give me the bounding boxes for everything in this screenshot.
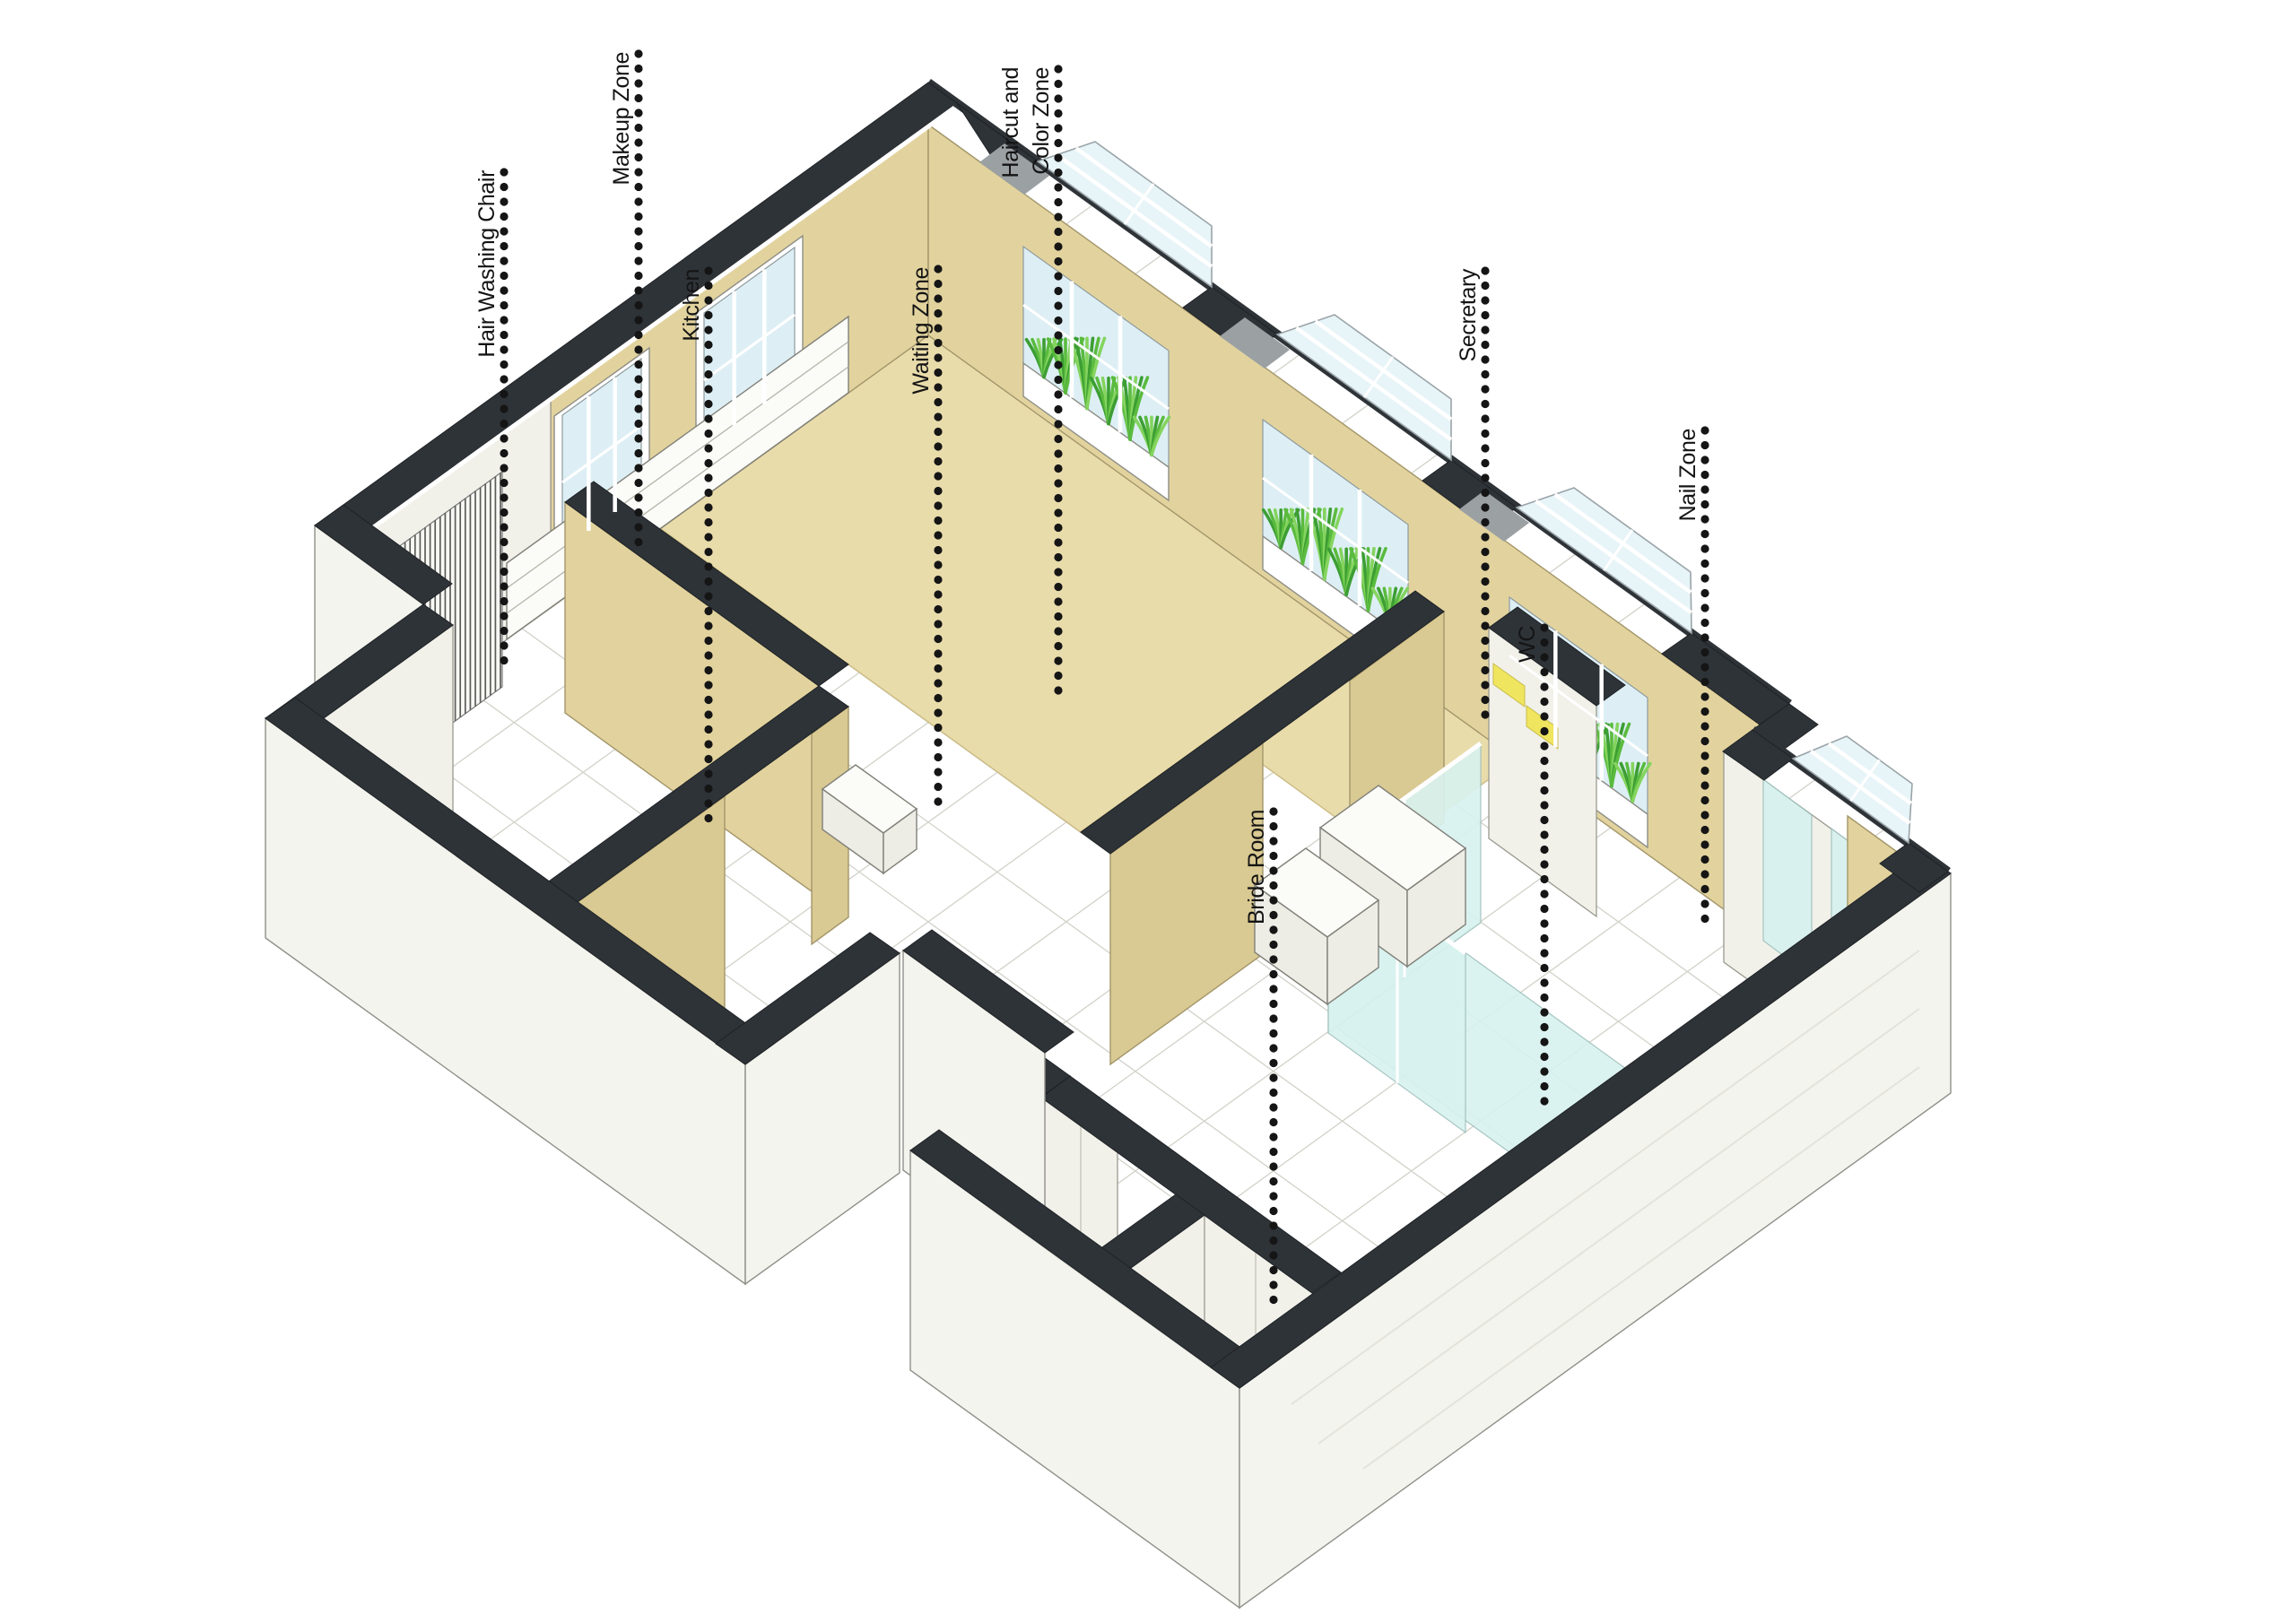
leader-dot (634, 272, 642, 280)
leader-dot (500, 420, 508, 428)
leader-dot (634, 538, 642, 546)
leader-dot (704, 562, 712, 570)
leader-dot (1481, 325, 1489, 334)
leader-dot (1054, 109, 1062, 117)
leader-dot (1269, 985, 1277, 993)
leader-dot (1481, 548, 1489, 556)
leader-dot (1481, 607, 1489, 615)
leader-dot (934, 753, 942, 761)
leader-dot (934, 679, 942, 687)
leader-dot (704, 282, 712, 290)
leader-dot (500, 479, 508, 487)
leader-dot (1540, 712, 1548, 720)
leader-dot (1054, 301, 1062, 309)
leader-dot (1540, 890, 1548, 898)
leader-dot (1481, 681, 1489, 689)
leader-dot (1269, 1177, 1277, 1185)
leader-dot (1540, 994, 1548, 1002)
leader-dot (1054, 65, 1062, 73)
leader-dot (1540, 668, 1548, 676)
leader-dot (634, 49, 642, 57)
leader-dot (634, 138, 642, 146)
leader-dot (704, 785, 712, 793)
leader-dot (704, 696, 712, 704)
leader-dot (934, 383, 942, 391)
leader-dot (1540, 934, 1548, 942)
leader-dot (1481, 651, 1489, 659)
leader-dot (704, 607, 712, 615)
leader-dot (500, 213, 508, 221)
leader-dot (634, 65, 642, 73)
leader-dot (1269, 955, 1277, 963)
leader-dot (1540, 1067, 1548, 1075)
leader-dot (1700, 855, 1709, 864)
zone-label-text: Color Zone (1029, 67, 1054, 175)
leader-dot (1700, 530, 1709, 538)
leader-dot (1700, 826, 1709, 834)
leader-dot (1700, 678, 1709, 686)
leader-dot (634, 420, 642, 428)
leader-dot (500, 390, 508, 398)
leader-dot (634, 108, 642, 117)
leader-dot (1700, 811, 1709, 819)
leader-dot (1481, 562, 1489, 570)
leader-dot (634, 213, 642, 221)
leader-dot (1054, 153, 1062, 161)
leader-dot (1700, 840, 1709, 848)
leader-dot (500, 538, 508, 546)
leader-dot (634, 316, 642, 324)
leader-dot (1540, 1082, 1548, 1090)
leader-dot (704, 459, 712, 467)
leader-dot (1700, 544, 1709, 552)
leader-dot (704, 414, 712, 422)
leader-dot (1269, 1251, 1277, 1259)
leader-dot (500, 627, 508, 635)
leader-dot (934, 516, 942, 525)
leader-dot (1054, 242, 1062, 250)
leader-dot (634, 124, 642, 132)
leader-dot (634, 242, 642, 250)
leader-dot (1700, 781, 1709, 789)
leader-dot (704, 740, 712, 748)
zone-label-text: Nail Zone (1675, 429, 1700, 521)
zone-label-text: WC (1515, 626, 1540, 663)
leader-dot (1269, 941, 1277, 949)
leader-dot (704, 651, 712, 659)
leader-dot (934, 398, 942, 406)
leader-dot (634, 331, 642, 339)
leader-dot (1269, 1014, 1277, 1022)
leader-dot (634, 375, 642, 383)
leader-dot (934, 738, 942, 746)
leader-dot (1700, 619, 1709, 627)
leader-dot (1481, 282, 1489, 290)
leader-dot (1054, 287, 1062, 295)
leader-dot (934, 369, 942, 377)
leader-dot (500, 656, 508, 664)
leader-dot (704, 814, 712, 822)
leader-dot (500, 256, 508, 265)
leader-dot (1481, 355, 1489, 363)
leader-dot (1054, 568, 1062, 576)
leader-dot (1054, 686, 1062, 694)
leader-dot (500, 168, 508, 176)
leader-dot (1540, 727, 1548, 735)
leader-dot (1269, 822, 1277, 830)
leader-dot (704, 266, 712, 274)
leader-dot (634, 286, 642, 294)
leader-dot (1540, 830, 1548, 838)
leader-dot (1269, 1089, 1277, 1097)
leader-dot (1540, 875, 1548, 883)
leader-dot (704, 533, 712, 541)
leader-dot (1481, 592, 1489, 600)
leader-dot (1540, 786, 1548, 794)
leader-dot (1540, 623, 1548, 631)
leader-dot (1269, 807, 1277, 815)
leader-dot (634, 227, 642, 235)
leader-dot (934, 768, 942, 776)
leader-dot (1540, 757, 1548, 765)
leader-dot (1700, 426, 1709, 434)
leader-dot (934, 324, 942, 332)
leader-dot (1540, 949, 1548, 957)
leader-dot (1540, 1097, 1548, 1105)
leader-dot (934, 560, 942, 568)
leader-dot (634, 523, 642, 531)
leader-dot (1481, 696, 1489, 704)
leader-dot (704, 370, 712, 378)
leader-dot (1054, 508, 1062, 516)
leader-dot (500, 286, 508, 294)
leader-dot (1269, 911, 1277, 919)
salon-axonometric-plan: Hair Washing ChairMakeup ZoneKitchenWait… (0, 0, 2296, 1623)
leader-dot (1054, 449, 1062, 457)
leader-dot (1054, 553, 1062, 561)
leader-dot (634, 390, 642, 398)
leader-dot (500, 316, 508, 324)
leader-dot (1054, 627, 1062, 635)
leader-dot (500, 493, 508, 501)
leader-dot (934, 428, 942, 436)
leader-dot (500, 508, 508, 516)
leader-dot (1481, 666, 1489, 674)
leader-dot (634, 168, 642, 176)
leader-dot (1269, 1059, 1277, 1067)
leader-dot (704, 473, 712, 482)
leader-dot (934, 664, 942, 673)
leader-dot (1269, 925, 1277, 933)
leader-dot (704, 592, 712, 600)
leader-dot (1269, 1103, 1277, 1111)
leader-dot (1540, 846, 1548, 854)
leader-dot (1054, 213, 1062, 221)
leader-dot (1054, 257, 1062, 265)
leader-dot (1540, 638, 1548, 647)
leader-dot (1269, 1148, 1277, 1156)
leader-dot (1700, 456, 1709, 464)
leader-dot (704, 577, 712, 586)
leader-dot (1269, 1207, 1277, 1215)
leader-dot (500, 434, 508, 442)
leader-dot (634, 79, 642, 87)
leader-dot (500, 464, 508, 472)
leader-dot (500, 183, 508, 191)
leader-dot (634, 464, 642, 472)
leader-dot (1054, 317, 1062, 325)
leader-dot (934, 783, 942, 791)
leader-dot (1269, 866, 1277, 874)
leader-dot (1269, 1000, 1277, 1008)
leader-dot (1540, 1023, 1548, 1031)
leader-dot (1481, 430, 1489, 438)
leader-dot (500, 552, 508, 560)
leader-dot (704, 725, 712, 733)
leader-dot (704, 430, 712, 438)
leader-dot (1700, 870, 1709, 878)
leader-dot (934, 620, 942, 628)
leader-dot (934, 797, 942, 805)
leader-dot (500, 641, 508, 649)
leader-dot (1054, 80, 1062, 88)
leader-dot (500, 404, 508, 412)
leader-dot (1700, 885, 1709, 893)
leader-dot (500, 612, 508, 620)
leader-dot (1540, 919, 1548, 927)
leader-dot (634, 153, 642, 161)
leader-dot (1700, 589, 1709, 597)
leader-dot (1540, 964, 1548, 972)
leader-dot (1054, 139, 1062, 147)
leader-dot (1054, 331, 1062, 339)
leader-dot (1700, 648, 1709, 656)
leader-dot (634, 508, 642, 516)
leader-dot (1540, 771, 1548, 779)
zone-label-text: Waiting Zone (909, 267, 934, 395)
leader-dot (1540, 742, 1548, 750)
leader-dot (1054, 642, 1062, 650)
leader-dot (1054, 405, 1062, 413)
zone-label-text: Makeup Zone (609, 52, 634, 185)
leader-dot (704, 444, 712, 452)
leader-dot (934, 280, 942, 288)
leader-dot (1269, 1162, 1277, 1170)
leader-dot (704, 666, 712, 674)
leader-dot (1054, 198, 1062, 206)
leader-dot (1269, 1296, 1277, 1304)
leader-dot (500, 242, 508, 250)
leader-dot (934, 605, 942, 613)
leader-dot (1054, 538, 1062, 546)
leader-dot (704, 489, 712, 497)
leader-dot (1540, 653, 1548, 661)
leader-dot (704, 311, 712, 319)
leader-dot (1481, 414, 1489, 422)
leader-dot (704, 518, 712, 526)
leader-dot (934, 590, 942, 598)
leader-dot (1269, 1280, 1277, 1289)
leader-dot (500, 582, 508, 590)
leader-dot (1540, 860, 1548, 868)
leader-dot (1269, 1266, 1277, 1274)
leader-dot (934, 339, 942, 347)
leader-dot (704, 637, 712, 645)
leader-dot (1700, 441, 1709, 449)
leader-dot (1481, 296, 1489, 304)
leader-dot (634, 434, 642, 442)
leader-dot (500, 568, 508, 576)
leader-dot (500, 301, 508, 309)
leader-dot (934, 694, 942, 702)
leader-dot (1269, 970, 1277, 978)
leader-dot (1269, 1044, 1277, 1052)
leader-dot (704, 341, 712, 349)
leader-dot (934, 294, 942, 302)
leader-dot (1269, 852, 1277, 860)
leader-dot (1481, 400, 1489, 408)
leader-dot (1540, 682, 1548, 690)
leader-dot (1700, 633, 1709, 641)
leader-dot (1054, 183, 1062, 191)
leader-dot (1054, 597, 1062, 605)
leader-dot (1700, 751, 1709, 759)
leader-dot (1269, 1133, 1277, 1141)
zone-label-text: Kitchen (679, 269, 704, 342)
leader-dot (1054, 376, 1062, 384)
leader-dot (1540, 1037, 1548, 1046)
leader-dot (634, 404, 642, 412)
leader-dot (1540, 905, 1548, 913)
leader-dot (1700, 707, 1709, 716)
leader-dot (1700, 574, 1709, 582)
leader-dot (1054, 672, 1062, 680)
leader-dot (1481, 518, 1489, 526)
leader-dot (634, 493, 642, 501)
leader-dot (1481, 266, 1489, 274)
leader-dot (1700, 515, 1709, 523)
leader-dot (1540, 978, 1548, 986)
leader-dot (1540, 1008, 1548, 1016)
leader-dot (1054, 435, 1062, 443)
leader-dot (500, 331, 508, 339)
leader-dot (1481, 311, 1489, 319)
leader-dot (1700, 603, 1709, 612)
leader-dot (634, 449, 642, 457)
leader-dot (1700, 500, 1709, 508)
leader-dot (1481, 489, 1489, 497)
leader-dot (934, 442, 942, 450)
leader-dot (1700, 485, 1709, 493)
leader-dot (500, 360, 508, 369)
zone-label-text: Bride Room (1244, 810, 1269, 924)
leader-dot (1481, 710, 1489, 718)
leader-dot (934, 724, 942, 732)
leader-dot (704, 296, 712, 304)
leader-dot (1054, 228, 1062, 236)
leader-dot (934, 546, 942, 554)
leader-dot (934, 501, 942, 509)
leader-dot (1269, 1221, 1277, 1229)
leader-dot (1054, 524, 1062, 532)
leader-dot (1700, 560, 1709, 568)
leader-dot (934, 472, 942, 480)
leader-dot (1054, 124, 1062, 132)
leader-dot (634, 479, 642, 487)
leader-dot (1054, 494, 1062, 502)
leader-dot (1481, 444, 1489, 452)
leader-dot (934, 353, 942, 361)
leader-dot (934, 412, 942, 421)
leader-dot (1700, 915, 1709, 923)
leader-dot (1481, 370, 1489, 378)
leader-dot (634, 360, 642, 369)
leader-dot (1054, 169, 1062, 177)
leader-dot (704, 710, 712, 718)
leader-dot (1054, 390, 1062, 398)
leader-dot (1269, 1073, 1277, 1081)
leader-dot (934, 265, 942, 273)
leader-dot (500, 597, 508, 605)
leader-dot (1481, 385, 1489, 393)
leader-dot (1481, 503, 1489, 511)
zone-label-text: Hair Washing Chair (474, 170, 500, 358)
leader-dot (1481, 473, 1489, 482)
leader-dot (1269, 1029, 1277, 1037)
leader-dot (1481, 533, 1489, 541)
leader-dot (934, 635, 942, 643)
leader-dot (704, 385, 712, 393)
leader-dot (1700, 722, 1709, 730)
leader-dot (1481, 637, 1489, 645)
leader-dot (704, 755, 712, 763)
leader-dot (1054, 94, 1062, 102)
leader-dot (1054, 272, 1062, 280)
leader-dot (704, 503, 712, 511)
leader-dot (1054, 346, 1062, 354)
leader-dot (1269, 837, 1277, 845)
leader-dot (934, 708, 942, 716)
leader-dot (1540, 801, 1548, 809)
leader-dot (500, 375, 508, 383)
leader-dot (934, 576, 942, 584)
leader-dot (1269, 1192, 1277, 1200)
leader-dot (634, 183, 642, 191)
leader-dot (1054, 479, 1062, 487)
leader-dot (500, 523, 508, 531)
leader-dot (1700, 471, 1709, 479)
leader-dot (1054, 464, 1062, 473)
leader-dot (1700, 796, 1709, 804)
leader-dot (934, 531, 942, 539)
leader-dot (704, 400, 712, 408)
leader-dot (1269, 881, 1277, 890)
leader-dot (1481, 577, 1489, 586)
leader-dot (934, 487, 942, 495)
leader-dot (1054, 583, 1062, 591)
leader-dot (634, 256, 642, 265)
leader-dot (1269, 896, 1277, 904)
leader-dot (1481, 621, 1489, 629)
leader-dot (704, 621, 712, 629)
leader-dot (1269, 1118, 1277, 1126)
leader-dot (704, 355, 712, 363)
leader-dot (704, 799, 712, 807)
leader-dot (1700, 737, 1709, 745)
leader-dot (634, 94, 642, 102)
leader-dot (500, 272, 508, 280)
leader-dot (704, 325, 712, 334)
